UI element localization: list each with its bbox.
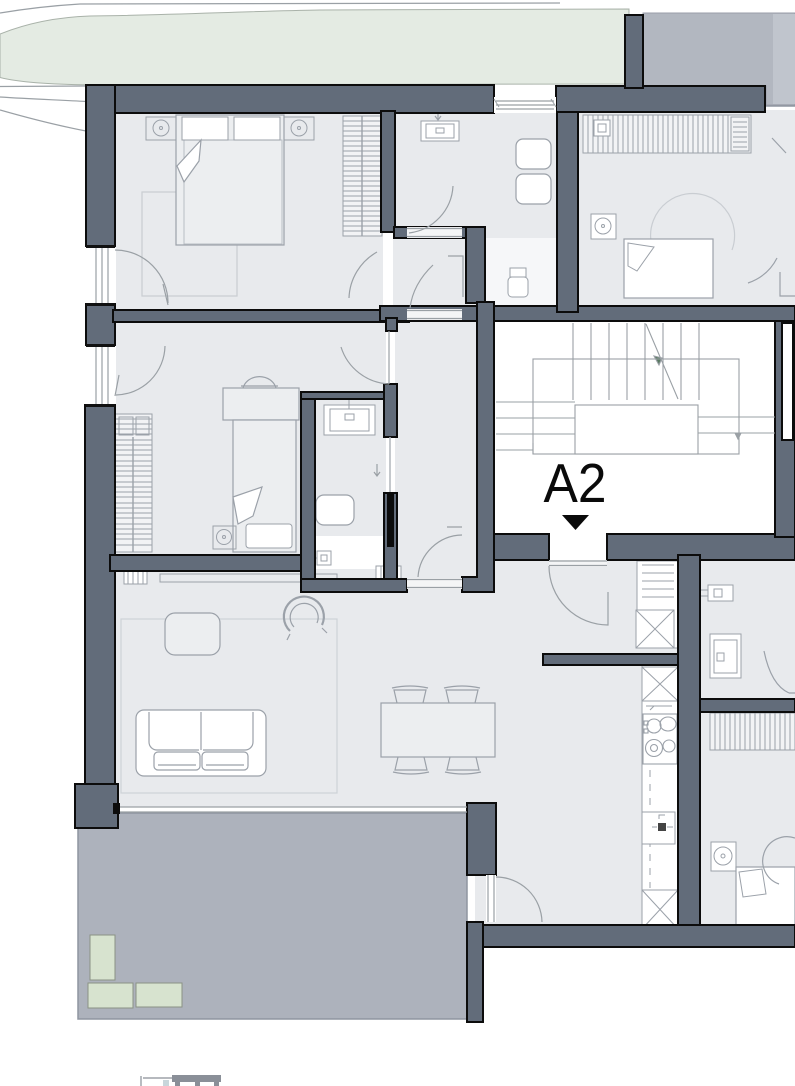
svg-text:A2: A2 — [544, 452, 607, 514]
